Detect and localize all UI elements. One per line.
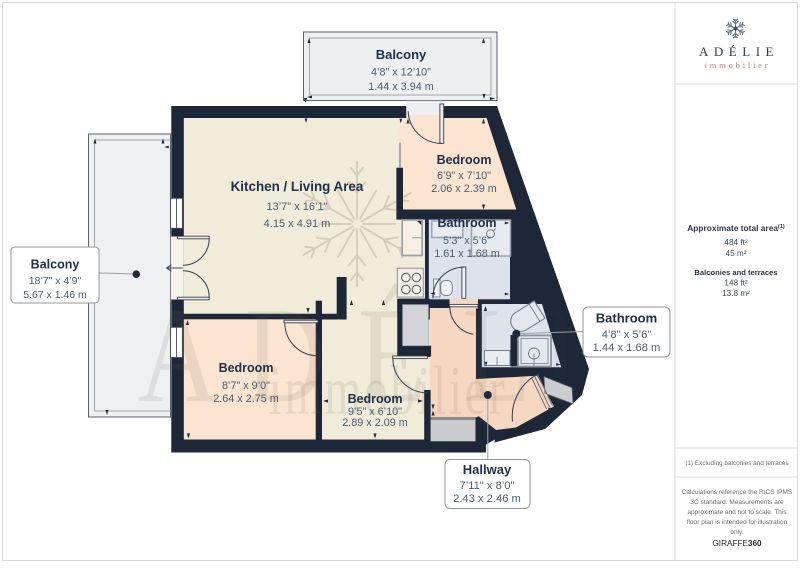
svg-text:484 ft²: 484 ft²: [724, 238, 747, 247]
svg-text:Approximate total area(1): Approximate total area(1): [687, 223, 785, 233]
svg-text:8’7" x 9’0": 8’7" x 9’0": [222, 380, 270, 392]
svg-text:13.8 m²: 13.8 m²: [722, 289, 750, 298]
svg-text:Kitchen / Living Area: Kitchen / Living Area: [231, 179, 364, 194]
svg-text:4’8" x 5’6": 4’8" x 5’6": [602, 329, 652, 341]
svg-text:Balconies and terraces: Balconies and terraces: [694, 268, 777, 277]
svg-text:only.: only.: [730, 529, 743, 536]
svg-text:2.64 x 2.75 m: 2.64 x 2.75 m: [213, 393, 278, 405]
svg-text:4’8" x 12’10": 4’8" x 12’10": [371, 67, 431, 79]
svg-text:Bathroom: Bathroom: [437, 216, 496, 230]
svg-text:2.06 x 2.39 m: 2.06 x 2.39 m: [431, 183, 496, 195]
svg-text:7’11" x 8’0": 7’11" x 8’0": [459, 480, 514, 492]
svg-text:(1) Excluding balconies and te: (1) Excluding balconies and terraces: [685, 460, 788, 467]
svg-text:2.89 x 2.09 m: 2.89 x 2.09 m: [342, 417, 407, 429]
svg-text:approximate and not to scale.: approximate and not to scale. This: [687, 509, 787, 516]
svg-text:13’7" x 16’1": 13’7" x 16’1": [266, 201, 327, 213]
svg-text:6’9" x 7’10": 6’9" x 7’10": [437, 170, 491, 182]
svg-text:GIRAFFE360: GIRAFFE360: [712, 539, 762, 548]
svg-text:5.67 x 1.46 m: 5.67 x 1.46 m: [23, 289, 87, 301]
svg-text:Calculations reference the RIC: Calculations reference the RICS IPMS: [682, 489, 793, 496]
svg-text:148 ft²: 148 ft²: [724, 279, 747, 288]
svg-text:floor plan is intended for ill: floor plan is intended for illustration: [687, 519, 788, 526]
svg-text:Bathroom: Bathroom: [596, 311, 657, 326]
svg-text:Balcony: Balcony: [31, 258, 80, 272]
svg-text:Bedroom: Bedroom: [437, 153, 492, 167]
svg-text:4.15 x 4.91 m: 4.15 x 4.91 m: [264, 218, 331, 230]
svg-text:Balcony: Balcony: [376, 47, 427, 62]
svg-text:Bedroom: Bedroom: [219, 361, 274, 375]
svg-text:3C standard. Measurements are: 3C standard. Measurements are: [690, 499, 784, 506]
svg-text:2.43 x 2.46 m: 2.43 x 2.46 m: [453, 493, 521, 505]
svg-text:immobilier: immobilier: [705, 60, 771, 70]
svg-text:18’7" x 4’9": 18’7" x 4’9": [29, 275, 82, 287]
svg-text:5’3" x 5’6": 5’3" x 5’6": [443, 235, 491, 247]
svg-text:1.44 x 1.68 m: 1.44 x 1.68 m: [593, 342, 661, 354]
svg-text:1.44 x 3.94 m: 1.44 x 3.94 m: [368, 81, 433, 93]
svg-text:ADÉLIE: ADÉLIE: [699, 44, 779, 59]
svg-text:45 m²: 45 m²: [726, 249, 747, 258]
svg-text:1.61 x 1.68 m: 1.61 x 1.68 m: [434, 248, 499, 260]
svg-text:Hallway: Hallway: [463, 462, 512, 477]
svg-text:Bedroom: Bedroom: [348, 392, 403, 406]
